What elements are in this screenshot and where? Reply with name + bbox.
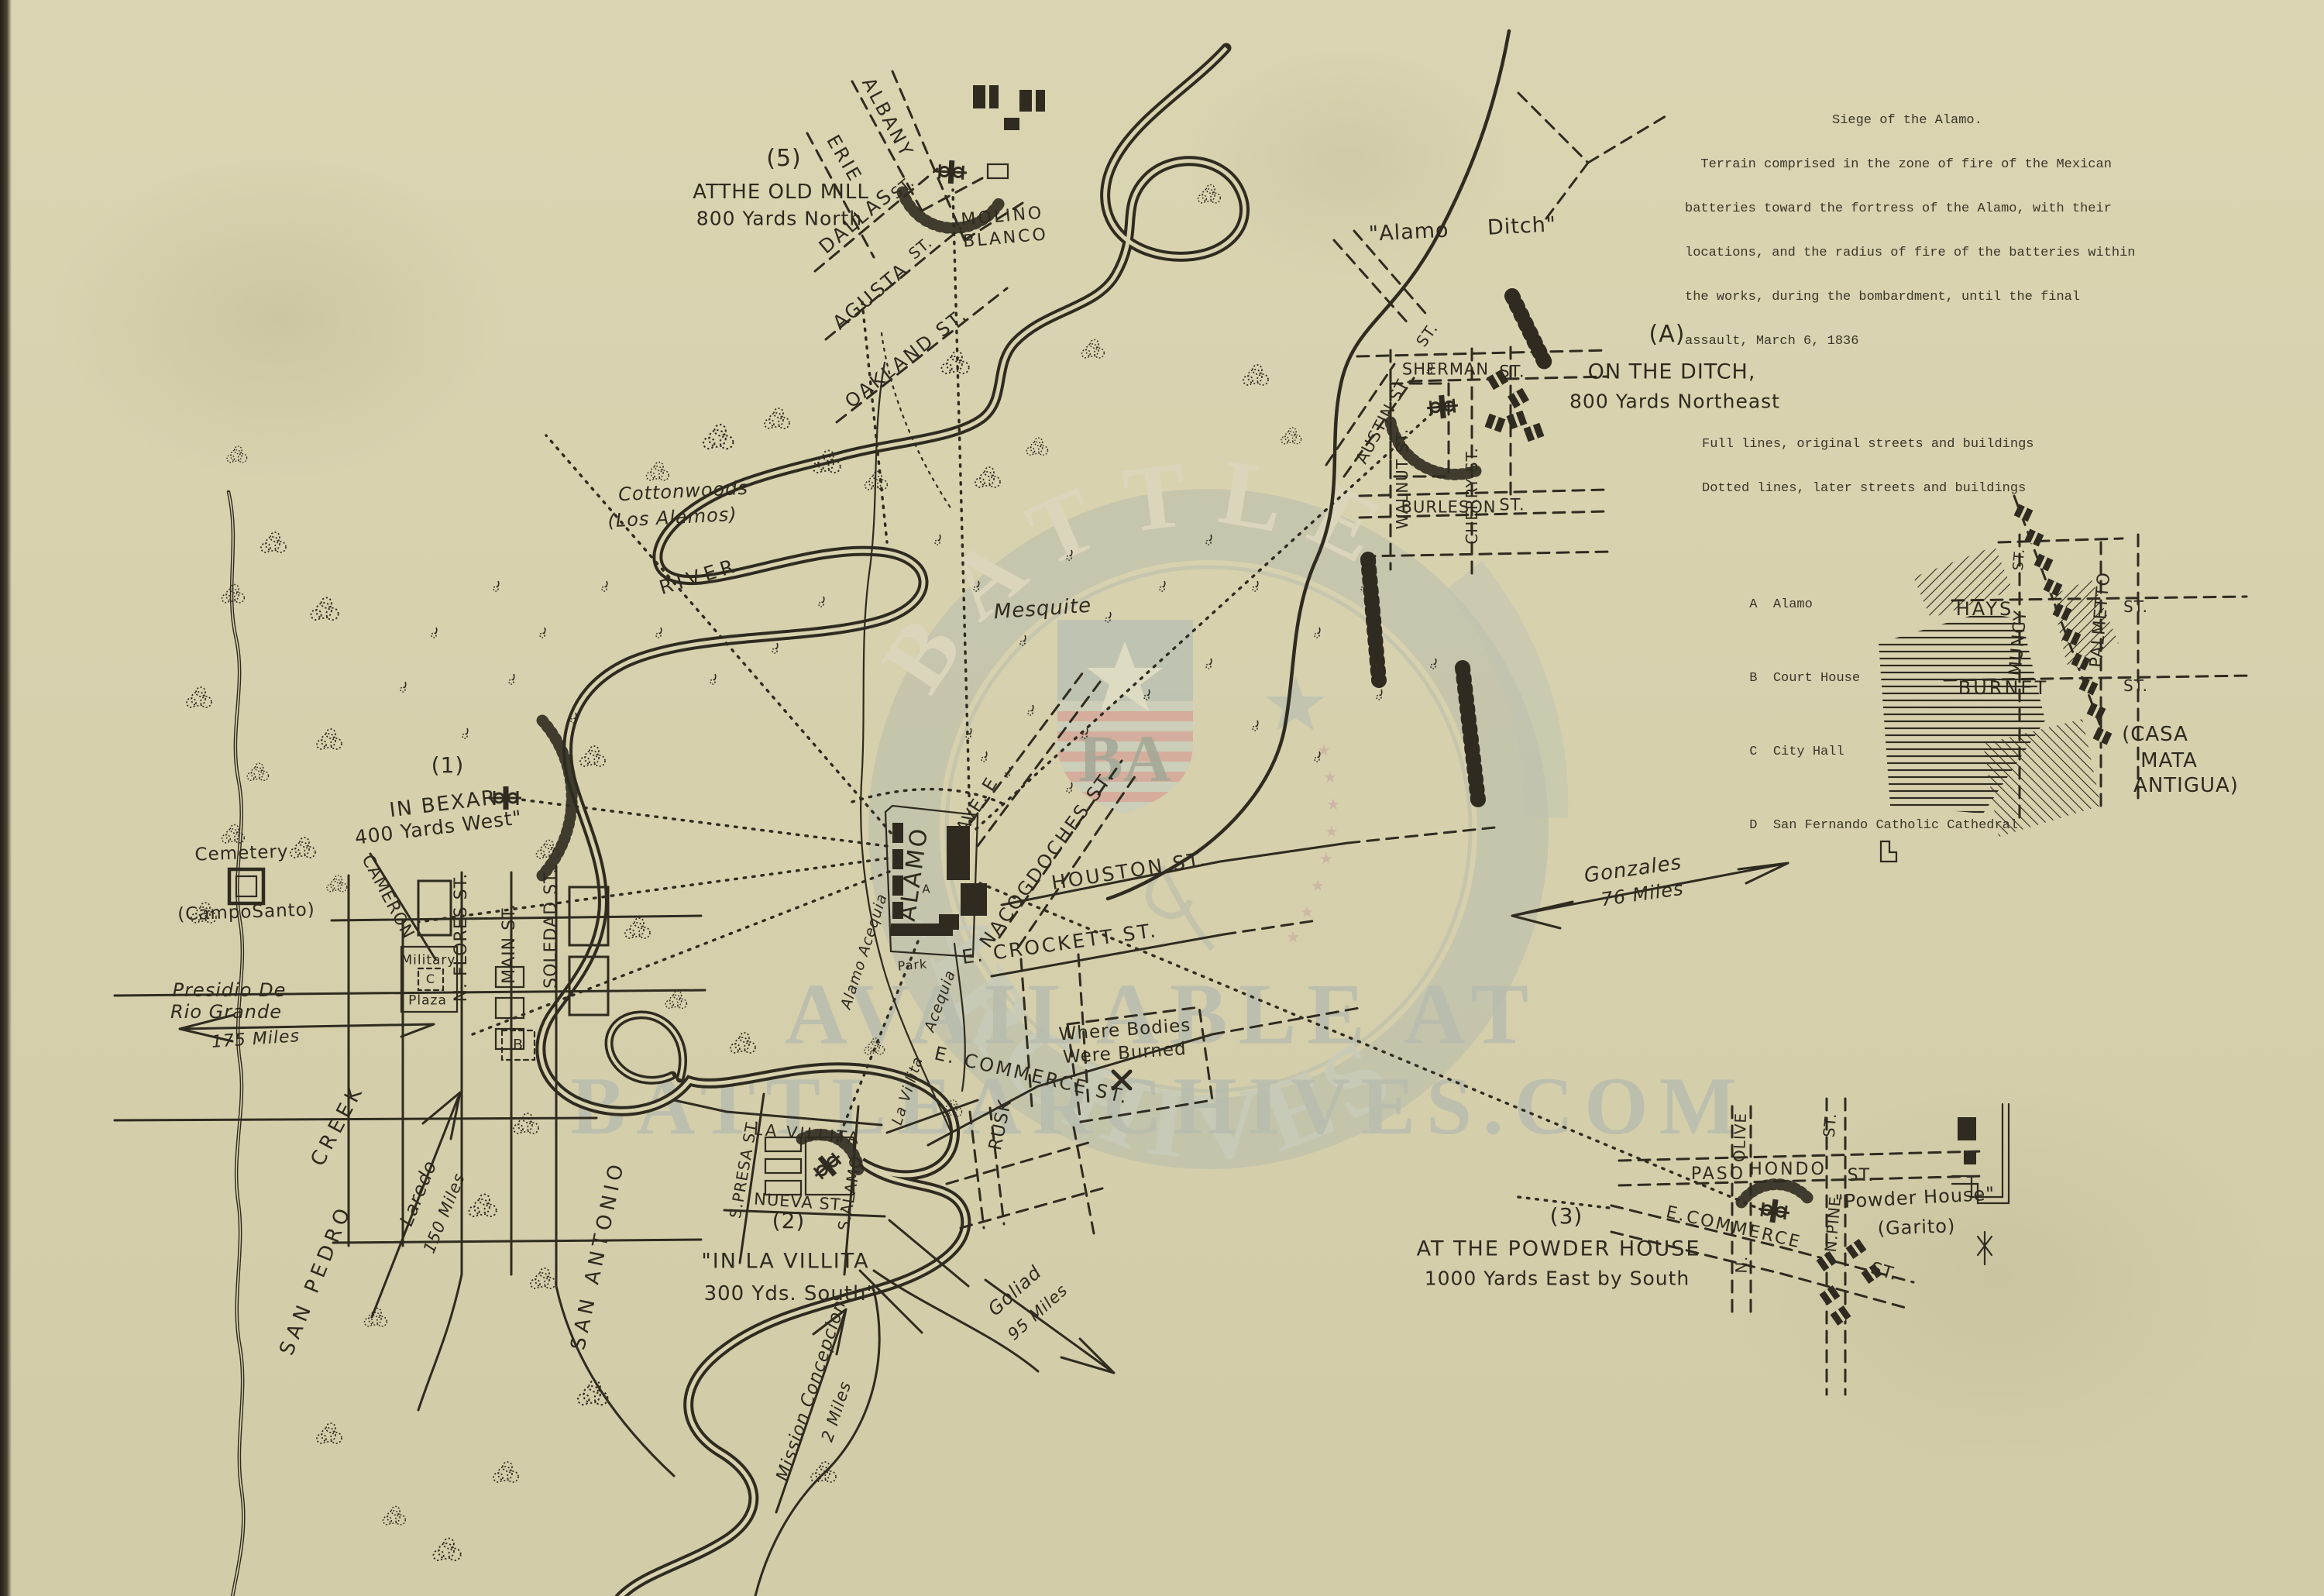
street-soledad: SOLEDAD ST.: [543, 868, 560, 989]
key-letter-b: B: [1749, 671, 1757, 686]
marker-b: B: [513, 1038, 524, 1053]
place-presidio-line1: Presidio De: [173, 981, 287, 999]
place-cemetery: Cemetery: [194, 843, 289, 864]
title-body-line4: the works, during the bombardment, until…: [1685, 290, 2165, 304]
surveyor-monogram-icon: [1978, 1232, 1992, 1264]
key-row-c: C City Hall: [1685, 730, 2165, 774]
map-title: Siege of the Alamo.: [1685, 113, 2165, 128]
street-paso: PASO: [1691, 1166, 1745, 1183]
title-body-line3: locations, and the radius of fire of the…: [1685, 246, 2165, 260]
place-garito: (Garito): [1877, 1216, 1955, 1237]
title-body-line5: assault, March 6, 1836: [1685, 334, 2165, 349]
key-name-b: Court House: [1773, 671, 1860, 686]
battery5-line2: 800 Yards North: [696, 209, 862, 229]
battery5-line1: ATTHE OLD MILL: [693, 182, 869, 202]
key-letter-c: C: [1749, 745, 1757, 759]
street-burleson-st: ST.: [1499, 497, 1525, 514]
street-olive-n: N.: [1734, 1255, 1750, 1274]
acequias: [861, 333, 965, 1133]
place-presidio-line2: Rio Grande: [170, 1003, 282, 1021]
key-letter-a: A: [1749, 597, 1757, 612]
battery3-line2: 1000 Yards East by South: [1425, 1269, 1690, 1288]
marker-a: A: [922, 884, 930, 896]
street-n-flores: N. FLORES ST.: [453, 873, 470, 1003]
key-name-a: Alamo: [1773, 597, 1813, 612]
cemetery-symbol: [229, 869, 263, 903]
street-cherry: CHERRY ST.: [1464, 447, 1480, 545]
street-main: MAIN ST.: [501, 903, 518, 984]
battery5-number: (5): [766, 147, 802, 170]
key-row-b: B Court House: [1685, 656, 2165, 700]
legend-dotted-lines: Dotted lines, later streets and building…: [1685, 481, 2165, 496]
battery2-number: (2): [772, 1210, 806, 1232]
key-name-c: City Hall: [1773, 745, 1844, 759]
key-row-a: A Alamo: [1685, 583, 2165, 627]
street-burleson: BURLESON: [1401, 500, 1497, 516]
battery3-line1: AT THE POWDER HOUSE: [1417, 1239, 1701, 1260]
key-letter-d: D: [1749, 818, 1757, 833]
battery2-line2: 300 Yds. South": [704, 1284, 877, 1304]
street-olive: OLIVE: [1731, 1113, 1748, 1163]
page-binding-edge: [0, 0, 12, 1596]
place-military: Military: [401, 955, 456, 968]
title-body-line2: batteries toward the fortress of the Ala…: [1685, 201, 2165, 216]
place-park: Park: [897, 958, 928, 972]
key-name-d: San Fernando Catholic Cathedral: [1773, 818, 2018, 833]
original-streets: [115, 843, 1348, 1596]
title-body-line1: Terrain comprised in the zone of fire of…: [1685, 157, 2165, 172]
street-n-pine-st-top: ST.: [1821, 1112, 1839, 1138]
alamo-siege-map: BA BATTLE ARCHIVES ★★ ★★ ★★ ★★ AVAILABLE…: [0, 0, 2324, 1596]
legend-full-lines: Full lines, original streets and buildin…: [1685, 437, 2165, 452]
street-hondo: HONDO: [1749, 1161, 1827, 1178]
battery3-number: (3): [1550, 1206, 1583, 1227]
battery1-number: (1): [431, 755, 465, 776]
place-campo-santo: (CampoSanto): [177, 901, 315, 924]
street-sherman: SHERMAN: [1402, 362, 1489, 378]
street-paso-hondo-st: ST.: [1848, 1168, 1875, 1185]
place-plaza: Plaza: [408, 995, 447, 1008]
battery2-line1: "IN LA VILLITA: [701, 1251, 869, 1272]
title-block: Siege of the Alamo. Terrain comprised in…: [1685, 84, 2165, 877]
marker-c: C: [426, 973, 435, 985]
street-sherman-st: ST.: [1499, 364, 1525, 380]
mill-buildings: [973, 85, 1045, 178]
key-row-d: D San Fernando Catholic Cathedral: [1685, 803, 2165, 848]
batteryA-number: (A): [1649, 323, 1686, 346]
mesquite-scrub-marks: [401, 364, 1475, 793]
